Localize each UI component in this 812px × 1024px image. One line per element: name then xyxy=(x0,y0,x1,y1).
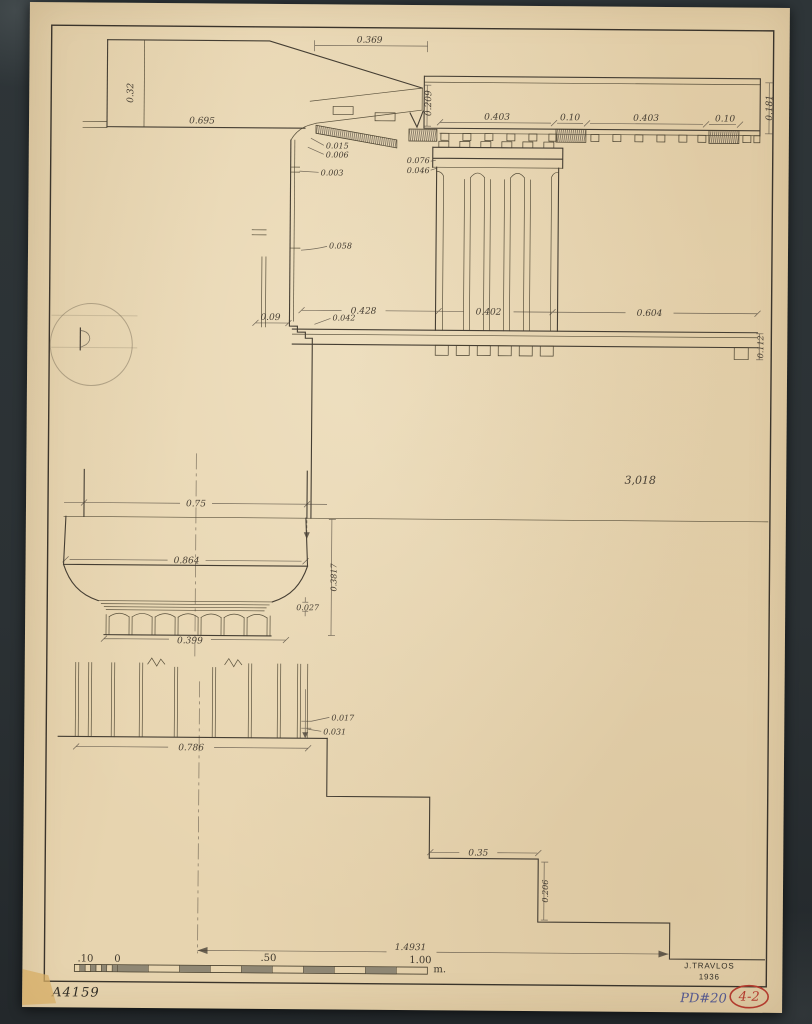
dim-shaft-width: 0.786 xyxy=(178,743,204,753)
pencil-sketch-molding-detail xyxy=(50,303,138,386)
scale-tick-end: 1.00 xyxy=(409,955,431,966)
dim-interaxial: 0.604 xyxy=(637,309,663,319)
regula-guttae xyxy=(435,345,553,356)
dim-arris-a: 0.017 xyxy=(331,713,355,722)
overall-height-note: 3,018 xyxy=(624,474,656,487)
signature-year: 1936 xyxy=(699,972,720,981)
page-ref-stamp: 4-2 xyxy=(730,986,768,1008)
entablature-section-drawing: 0.369 0.32 0.695 xyxy=(80,33,776,521)
author-signature: J.TRAVLOS xyxy=(684,961,734,970)
dim-geison-drop: 0.209 xyxy=(424,90,434,116)
dim-annulet-band: 0.027 xyxy=(296,603,320,612)
dim-bed-molding-3: 0.003 xyxy=(321,168,344,177)
dim-bed-molding-1: 0.015 xyxy=(326,141,349,150)
scale-unit-label: m. xyxy=(433,964,446,975)
shaft-flutes-drawing: 0.786 0.017 0.031 xyxy=(56,657,355,954)
dim-abacus-step: 0.042 xyxy=(332,313,355,322)
dim-abacus-back: 0.09 xyxy=(260,313,280,323)
dim-band-height: 0.112 xyxy=(756,335,765,358)
dim-architrave-soffit: 0.75 xyxy=(186,499,206,509)
dim-regula: 0.046 xyxy=(407,166,430,175)
dim-tread: 0.35 xyxy=(468,848,488,858)
architrave-soffit-level-line xyxy=(64,516,768,522)
dim-geison-face-height: 0.32 xyxy=(126,83,136,103)
dim-capital-height: 0.3817 xyxy=(329,562,338,591)
scale-tick-zero: 0 xyxy=(114,954,120,965)
dim-geison-soffit: 0.695 xyxy=(189,116,215,126)
dim-taenia: 0.076 xyxy=(407,156,430,165)
catalog-number: A4159 xyxy=(51,985,100,1000)
axis-to-step-dimension: 1.4931 xyxy=(395,943,427,953)
dim-riser: 0.206 xyxy=(541,880,550,903)
scale-bar: .10 0 .50 1.00 m. xyxy=(74,951,446,975)
capital-elevation-drawing: 0.75 0.864 0.027 0.399 0.3817 xyxy=(62,452,340,657)
triglyph-elevation: 0.076 0.046 xyxy=(405,141,562,331)
dim-mutule-b: 0.403 xyxy=(633,114,659,124)
dim-via-a: 0.10 xyxy=(560,113,580,123)
dim-corona-face: 0.181 xyxy=(765,95,775,121)
dim-triglyph: 0.402 xyxy=(476,308,502,318)
dim-annulet-step: 0.058 xyxy=(329,241,352,250)
plate-code: PD#20 xyxy=(679,991,727,1006)
neck-flutes xyxy=(104,613,271,636)
scale-tick-minor: .10 xyxy=(77,953,93,964)
drawing-sheet: 0.369 0.32 0.695 xyxy=(22,2,790,1013)
scale-tick-mid: .50 xyxy=(260,953,276,964)
page-ref: 4-2 xyxy=(738,990,760,1005)
dim-arris-b: 0.031 xyxy=(323,727,346,736)
dim-neck-width: 0.399 xyxy=(177,636,203,646)
archive-photo-mat: 0.369 0.32 0.695 xyxy=(0,0,812,1024)
dim-raking-geison-top: 0.369 xyxy=(357,36,383,46)
dim-abacus-width: 0.864 xyxy=(174,556,200,566)
corner-tape-stain xyxy=(22,969,56,1005)
steps-section-drawing: 0.35 0.206 1.4931 xyxy=(197,737,766,959)
dim-bed-molding-2: 0.006 xyxy=(326,150,349,159)
dim-via-b: 0.10 xyxy=(715,114,735,124)
dim-mutule-a: 0.403 xyxy=(484,113,510,123)
